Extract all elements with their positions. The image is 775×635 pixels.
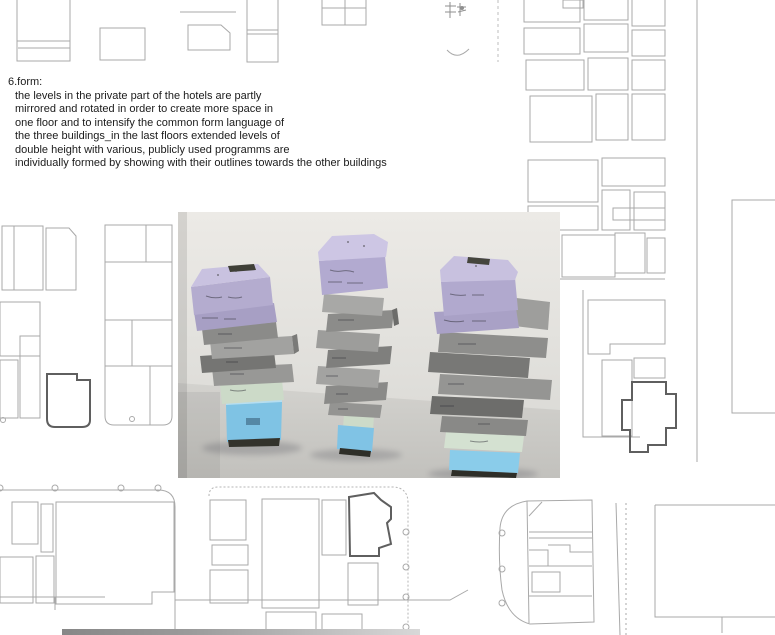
body-line: mirrored and rotated in order to create … [15, 103, 387, 117]
body-line: double height with various, publicly use… [15, 144, 387, 158]
curve-mark [447, 49, 469, 55]
body-line: one floor and to intensify the common fo… [15, 117, 387, 131]
street-bar [62, 629, 420, 635]
body-line: individually formed by showing with thei… [15, 157, 387, 171]
form-text-block: 6.form: the levels in the private part o… [8, 76, 387, 171]
body-line: the three buildings_in the last floors e… [15, 130, 387, 144]
body-line: the levels in the private part of the ho… [15, 90, 387, 104]
presentation-page: 6.form: the levels in the private part o… [0, 0, 775, 635]
tree-symbol [445, 2, 466, 18]
model-photo [178, 212, 560, 478]
section-heading: 6.form: [8, 76, 387, 90]
building-outline [17, 0, 70, 61]
